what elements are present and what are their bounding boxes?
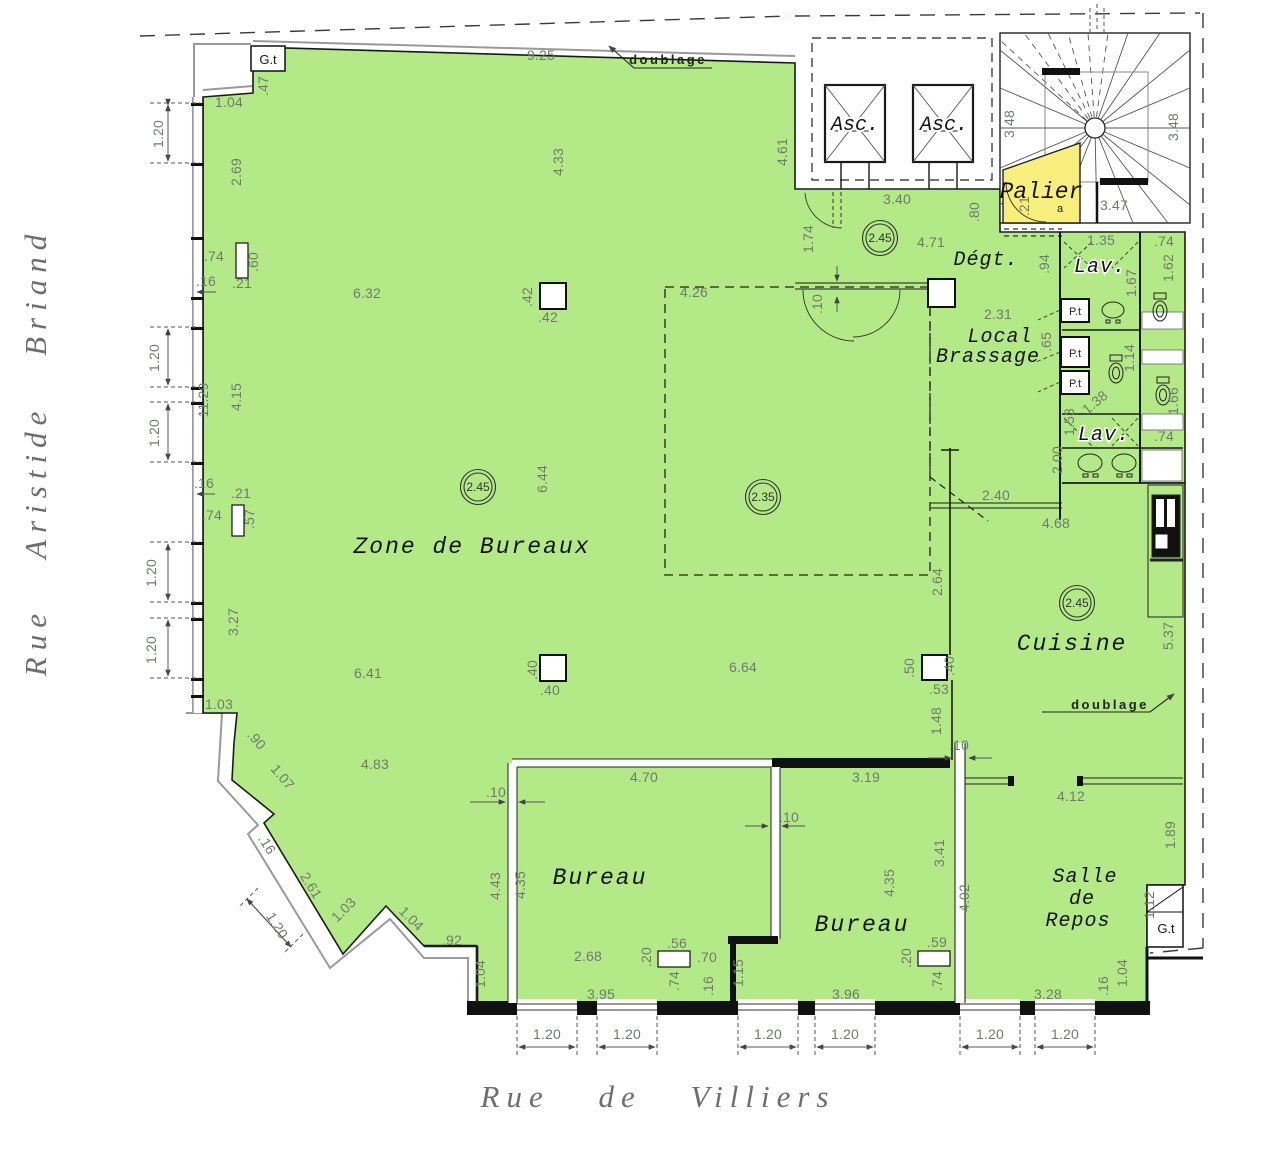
dim-label: .74 (1154, 428, 1174, 444)
dim-label: 2.68 (574, 948, 602, 964)
dim-label: .50 (901, 658, 917, 678)
room-label-palier: Palier (1000, 179, 1083, 205)
dim-label: 1.48 (928, 707, 944, 735)
dim-label: 2.40 (982, 487, 1010, 503)
label-doublage-top: doublage (629, 52, 707, 67)
dim-label: .74 (929, 971, 945, 991)
dim-label: 9.25 (527, 47, 555, 63)
room-label-lav-top: Lav. (1074, 256, 1126, 279)
floor-plan-page: Rue Aristide Briand Rue de Villiers Zone… (0, 0, 1280, 1158)
dim-label: 4.70 (630, 769, 658, 785)
label-placard-technique: P.t (1069, 348, 1081, 360)
street-label-left: Rue Aristide Briand (18, 228, 53, 677)
dim-label: .56 (667, 935, 687, 951)
dim-label: .74 (202, 507, 222, 523)
dim-label: 4.12 (1057, 788, 1085, 804)
dim-label: .80 (966, 202, 982, 222)
dim-label: 6.44 (534, 465, 550, 493)
dim-label: 3.40 (883, 191, 911, 207)
room-label-asc-right: Asc. (918, 114, 968, 137)
dim-label: 4.68 (1042, 515, 1070, 531)
room-label-brassage: Brassage (936, 346, 1040, 369)
room-label-salle-line3: Repos (1045, 910, 1110, 933)
dim-label: 3.41 (931, 839, 947, 867)
level-marker-value: 2.45 (466, 480, 490, 494)
dim-label: .94 (1036, 254, 1052, 274)
dim-label: 6.32 (353, 285, 381, 301)
dim-label: 3.96 (832, 986, 860, 1002)
dim-label: .40 (524, 660, 540, 680)
dim-label: 4.26 (680, 284, 708, 300)
dim-label: 4.02 (956, 884, 972, 912)
room-label-salle-line2: de (1069, 888, 1095, 911)
dim-label: 1.20 (613, 1026, 641, 1042)
column (540, 655, 566, 681)
dim-label: 1.20 (146, 344, 162, 372)
dim-label: .16 (1095, 976, 1111, 996)
dim-label: 1.20 (146, 419, 162, 447)
dim-label: 1.20 (143, 636, 159, 664)
dim-label: 1.20 (976, 1026, 1004, 1042)
dim-label: .42 (538, 309, 558, 325)
dim-label: 1.62 (1160, 254, 1176, 282)
dim-label: 1.04 (215, 94, 243, 110)
dim-label: .47 (255, 76, 271, 96)
dim-label: .70 (697, 949, 717, 965)
dim-label: 1.04 (472, 960, 488, 988)
dim-label: 4.35 (881, 869, 897, 897)
column (928, 279, 955, 307)
dim-label: 1.04 (1114, 959, 1130, 987)
dim-label: 1.15 (730, 959, 746, 987)
level-marker-value: 2.45 (868, 231, 892, 245)
dim-label: 5.37 (1160, 622, 1176, 650)
dim-label: 1.35 (1087, 232, 1115, 248)
dim-label: 4.43 (487, 872, 503, 900)
dim-label: .57 (241, 509, 257, 529)
dim-label: .16 (194, 475, 214, 491)
dim-label: 2.64 (929, 568, 945, 596)
dim-label: 4.33 (550, 148, 566, 176)
dim-label: 6.64 (729, 659, 757, 675)
dim-label: .42 (519, 287, 535, 307)
dim-label: .74 (1154, 233, 1174, 249)
room-label-bureau-1: Bureau (553, 865, 648, 891)
label-gaine-technique-top: G.t (259, 52, 277, 67)
street-label-bottom: Rue de Villiers (480, 1079, 836, 1114)
dim-label: 1.74 (800, 225, 816, 253)
bottom-left-walls (424, 946, 477, 1003)
level-marker-value: 2.45 (1065, 596, 1089, 610)
dim-label: 1.20 (150, 120, 166, 148)
dim-label: 4.15 (228, 383, 244, 411)
dim-label: 3.48 (1001, 110, 1017, 138)
dim-label: .65 (1038, 332, 1054, 352)
dim-label: 3.27 (225, 608, 241, 636)
dim-label: 4.35 (512, 871, 528, 899)
dim-label: 1.66 (1165, 387, 1181, 415)
room-label-cuisine: Cuisine (1017, 631, 1128, 657)
dim-label: 1.20 (831, 1026, 859, 1042)
dim-label: 4.61 (774, 138, 790, 166)
dim-label: 6.41 (354, 665, 382, 681)
wall-niche (918, 951, 950, 966)
dim-label: .74 (666, 971, 682, 991)
floor-plan-svg: Rue Aristide Briand Rue de Villiers Zone… (0, 0, 1280, 1158)
dim-label: 3.28 (1034, 986, 1062, 1002)
dim-label: .10 (809, 294, 825, 314)
dim-label: 11.29 (195, 382, 211, 417)
dim-label: .20 (898, 948, 914, 968)
dim-label: 1.53 (1061, 408, 1077, 436)
dim-label: .16 (196, 273, 216, 289)
dim-label: 3.48 (1165, 113, 1181, 141)
stair-center-post (1085, 118, 1105, 138)
dim-label: .10 (949, 737, 969, 753)
dim-label: .10 (779, 809, 799, 825)
dim-label: .40 (941, 656, 957, 676)
dim-label: 2.00 (1049, 446, 1065, 474)
dim-label: .16 (700, 976, 716, 996)
dim-label: 4.83 (361, 756, 389, 772)
dim-label: .21 (232, 275, 252, 291)
label-placard-technique: P.t (1069, 306, 1081, 318)
room-label-asc-left: Asc. (829, 114, 879, 137)
room-label-lav-bottom: Lav. (1078, 424, 1130, 447)
dim-label: 1.20 (143, 559, 159, 587)
dim-label: .20 (638, 947, 654, 967)
dim-label: 1.67 (1123, 269, 1139, 297)
dim-label: 2.69 (228, 158, 244, 186)
dim-label: 1.20 (754, 1026, 782, 1042)
label-doublage-right: doublage (1071, 697, 1149, 712)
dim-label: .21 (231, 485, 251, 501)
dim-label: 1.20 (533, 1026, 561, 1042)
level-marker-value: 2.35 (751, 490, 775, 504)
dim-label: .60 (245, 252, 261, 272)
dim-label: 2.31 (984, 306, 1012, 322)
wall-niche (658, 951, 690, 967)
dim-label: 3.47 (1100, 197, 1128, 213)
dim-label: 1.03 (205, 696, 233, 712)
dim-label: 1.12 (1141, 891, 1157, 919)
dim-label: a (1057, 203, 1064, 215)
dim-label: 1.14 (1121, 344, 1137, 372)
dim-label: 1.20 (263, 909, 291, 941)
label-placard-technique: P.t (1069, 378, 1081, 390)
dim-label: 3.95 (587, 986, 615, 1002)
room-label-salle-line1: Salle (1052, 866, 1117, 889)
dim-label: .10 (486, 784, 506, 800)
dim-label: 1.20 (1051, 1026, 1079, 1042)
dim-label: .53 (929, 681, 949, 697)
dim-label: .92 (442, 932, 462, 948)
room-label-bureau-2: Bureau (815, 912, 910, 938)
room-label-degt: Dégt. (953, 249, 1018, 272)
dim-label: 3.19 (852, 769, 880, 785)
dim-label: .21 (1016, 196, 1032, 216)
column (540, 283, 566, 309)
bottom-right-walls (1147, 947, 1203, 1003)
dim-label: 1.89 (1162, 821, 1178, 849)
dim-label: .59 (927, 934, 947, 950)
room-label-zone-de-bureaux: Zone de Bureaux (352, 534, 590, 560)
dim-label: .40 (540, 682, 560, 698)
dim-label: 4.71 (917, 234, 945, 250)
label-gaine-technique-bottom: G.t (1157, 921, 1175, 936)
dim-label: .74 (204, 248, 224, 264)
